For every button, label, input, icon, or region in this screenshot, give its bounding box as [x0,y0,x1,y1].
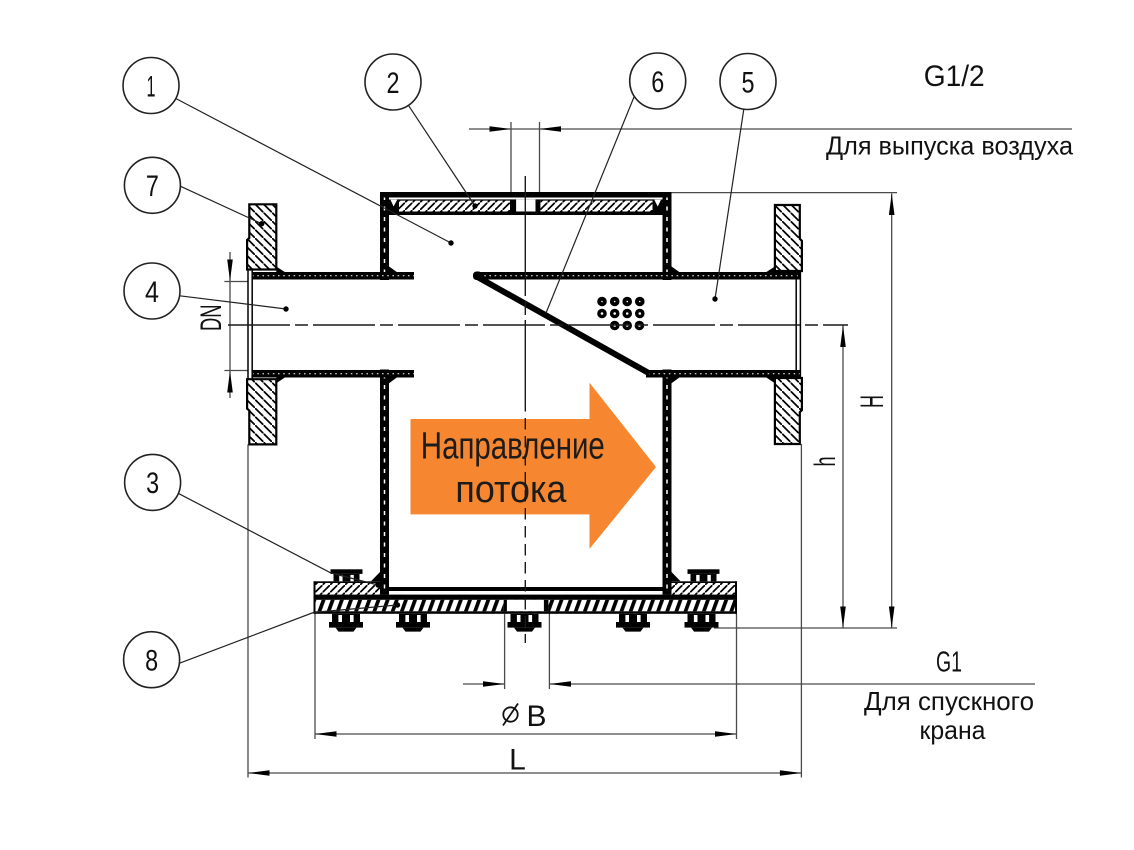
svg-text:Для выпуска воздуха: Для выпуска воздуха [826,131,1074,161]
svg-text:5: 5 [742,66,755,99]
svg-text:G1: G1 [936,647,962,679]
svg-text:Направление: Направление [421,426,605,468]
svg-text:4: 4 [145,276,159,309]
svg-text:G1/2: G1/2 [924,60,985,93]
svg-text:8: 8 [145,645,158,678]
svg-text:h: h [809,457,842,467]
svg-text:1: 1 [147,70,156,103]
svg-text:6: 6 [651,66,664,99]
svg-text:7: 7 [146,170,159,203]
svg-text:Для спускного: Для спускного [864,686,1034,716]
svg-text:L: L [509,744,526,777]
svg-text:B: B [527,700,547,733]
svg-text:крана: крана [920,715,987,745]
svg-text:потока: потока [455,469,567,511]
svg-text:2: 2 [387,67,400,100]
svg-text:DN: DN [195,305,228,332]
svg-text:3: 3 [146,467,159,500]
svg-text:H: H [854,395,890,408]
